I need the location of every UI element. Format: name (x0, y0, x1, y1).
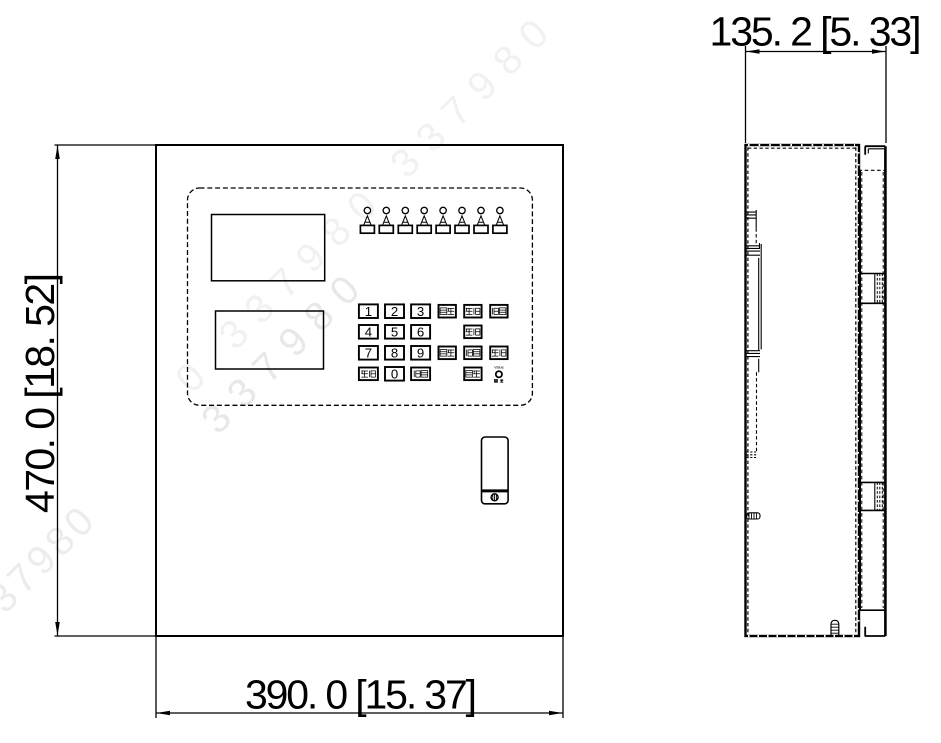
svg-text:390. 0 [15. 37]: 390. 0 [15. 37] (245, 672, 477, 718)
svg-text:8: 8 (391, 346, 398, 361)
svg-text:2: 2 (391, 304, 398, 319)
svg-text:470. 0 [18. 52]: 470. 0 [18. 52] (17, 273, 63, 513)
svg-text:7: 7 (365, 346, 372, 361)
svg-text:135. 2 [5. 33]: 135. 2 [5. 33] (710, 9, 922, 55)
svg-text:3: 3 (417, 304, 424, 319)
svg-text:6: 6 (417, 325, 424, 340)
svg-text:4: 4 (365, 325, 372, 340)
svg-text:5: 5 (391, 325, 398, 340)
svg-text:Value: Value (494, 364, 504, 369)
svg-text:1: 1 (365, 304, 372, 319)
svg-text:0: 0 (391, 367, 398, 382)
svg-text:9: 9 (417, 346, 424, 361)
